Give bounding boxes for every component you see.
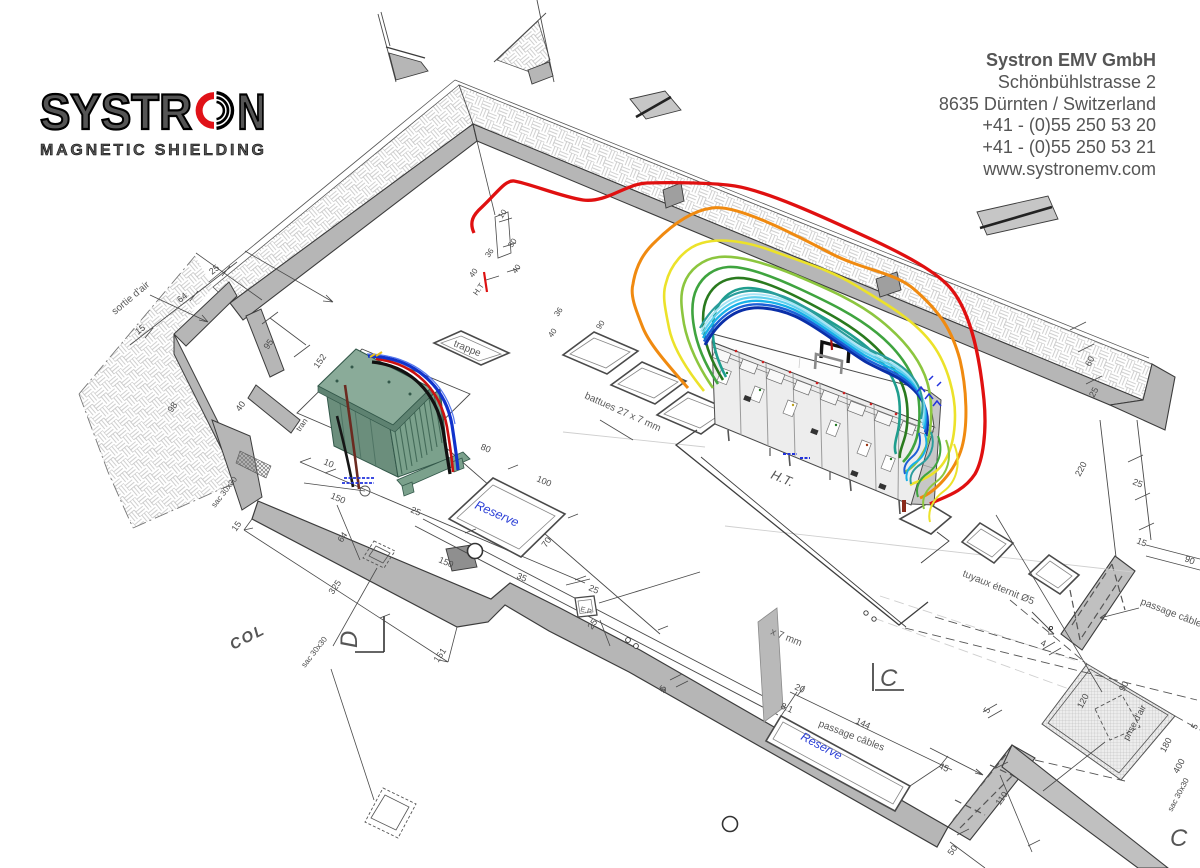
svg-text:+41 - (0)55 250 53 21: +41 - (0)55 250 53 21	[982, 137, 1156, 157]
svg-text:+41 - (0)55 250 53 20: +41 - (0)55 250 53 20	[982, 115, 1156, 135]
svg-text:Systron EMV GmbH: Systron EMV GmbH	[986, 50, 1156, 70]
svg-text:8635 Dürnten / Switzerland: 8635 Dürnten / Switzerland	[939, 94, 1156, 114]
svg-text:C: C	[880, 665, 898, 692]
svg-text:SYSTR: SYSTR	[40, 84, 192, 140]
svg-text:Schönbühlstrasse 2: Schönbühlstrasse 2	[998, 72, 1156, 92]
svg-text:www.systronemv.com: www.systronemv.com	[982, 159, 1156, 179]
svg-text:N: N	[238, 84, 266, 140]
svg-text:C: C	[1170, 825, 1188, 852]
svg-text:D: D	[336, 631, 363, 648]
